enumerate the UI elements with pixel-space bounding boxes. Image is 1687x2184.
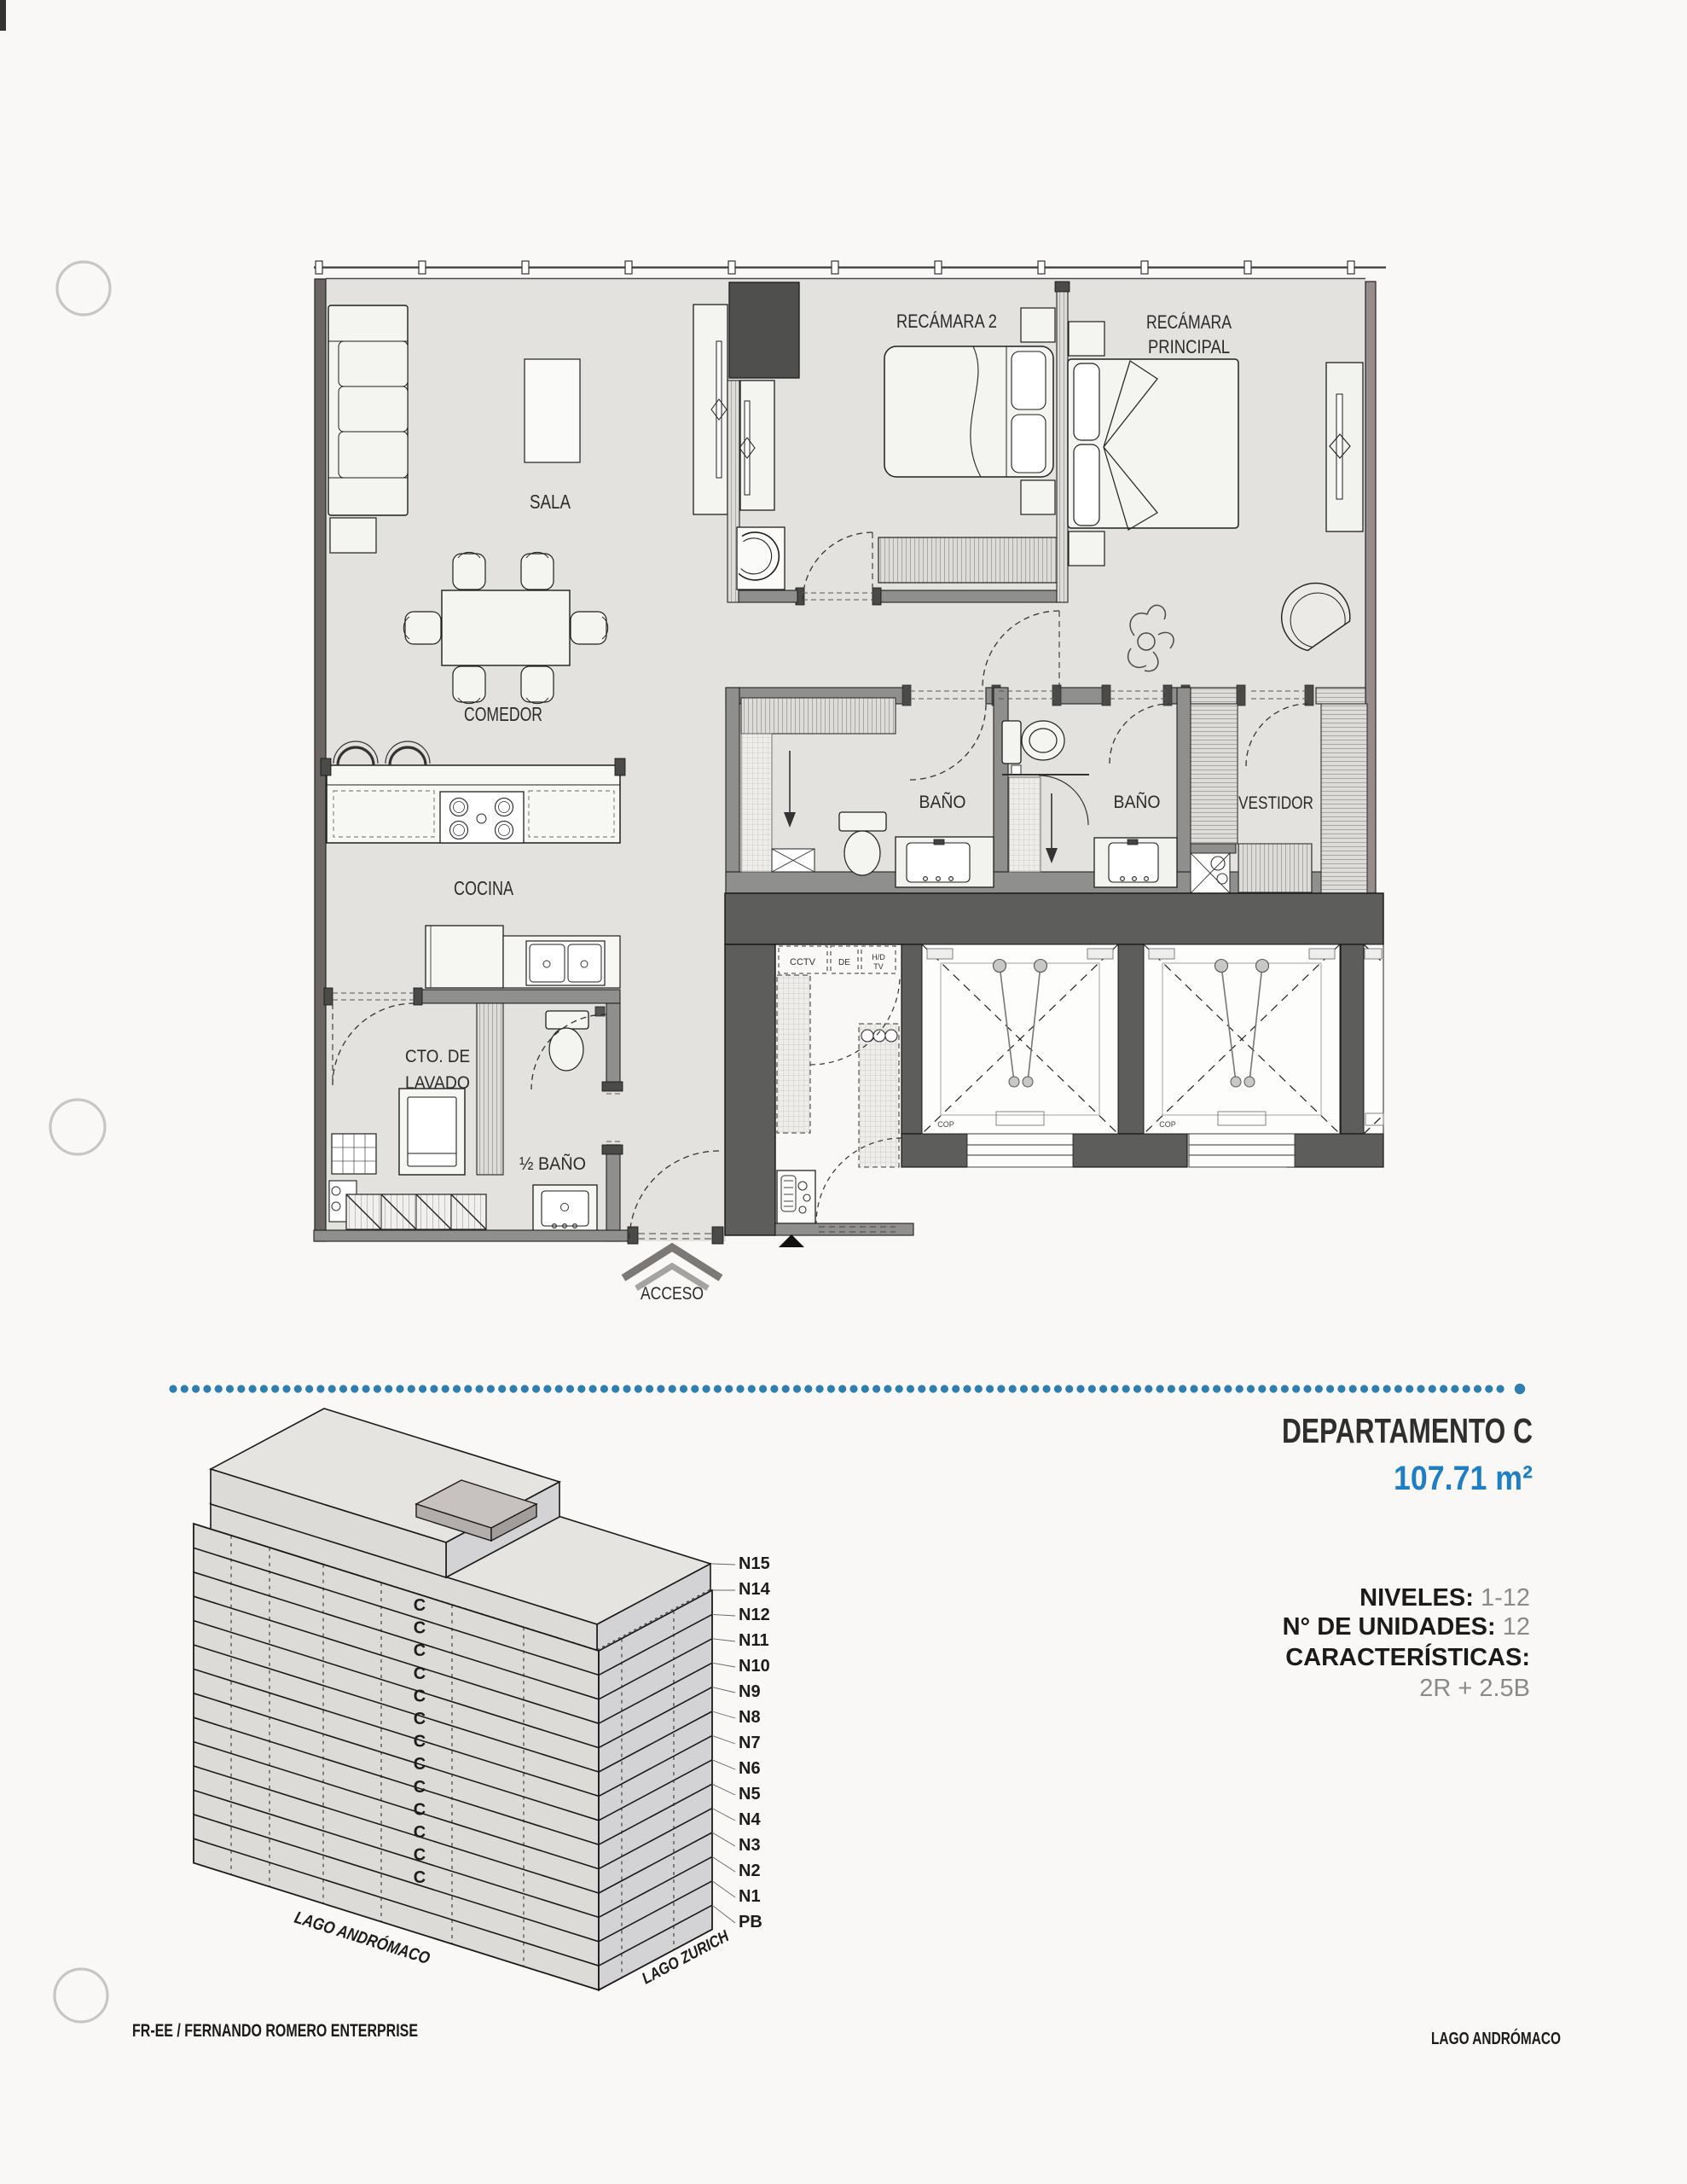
svg-text:LAVADO: LAVADO — [405, 1073, 470, 1093]
svg-text:N2: N2 — [739, 1862, 761, 1880]
svg-text:CARACTERÍSTICAS:: CARACTERÍSTICAS: — [1285, 1642, 1530, 1671]
svg-text:N° DE UNIDADES: 12: N° DE UNIDADES: 12 — [1283, 1613, 1530, 1641]
svg-text:C: C — [414, 1733, 426, 1751]
svg-text:½ BAÑO: ½ BAÑO — [519, 1153, 586, 1174]
svg-text:C: C — [414, 1755, 426, 1774]
svg-text:C: C — [414, 1868, 426, 1887]
svg-text:BAÑO: BAÑO — [919, 792, 966, 812]
svg-text:COCINA: COCINA — [454, 877, 514, 899]
svg-text:N4: N4 — [739, 1810, 761, 1829]
svg-text:C: C — [414, 1664, 426, 1683]
svg-text:2R + 2.5B: 2R + 2.5B — [1419, 1675, 1530, 1702]
svg-text:N5: N5 — [739, 1785, 761, 1804]
svg-text:C: C — [414, 1846, 426, 1865]
svg-text:COP: COP — [937, 1120, 954, 1129]
svg-text:CCTV: CCTV — [790, 957, 816, 967]
svg-text:N14: N14 — [739, 1580, 771, 1599]
svg-text:FR-EE / FERNANDO ROMERO ENTERP: FR-EE / FERNANDO ROMERO ENTERPRISE — [132, 2021, 418, 2041]
svg-text:C: C — [414, 1710, 426, 1728]
svg-text:N7: N7 — [739, 1734, 761, 1752]
svg-text:DE: DE — [838, 958, 850, 967]
svg-text:DEPARTAMENTO C: DEPARTAMENTO C — [1282, 1411, 1533, 1450]
svg-text:COMEDOR: COMEDOR — [464, 703, 542, 725]
svg-text:SALA: SALA — [530, 491, 571, 513]
svg-text:NIVELES: 1-12: NIVELES: 1-12 — [1359, 1584, 1530, 1612]
svg-text:PB: PB — [739, 1913, 762, 1931]
svg-text:N9: N9 — [739, 1682, 761, 1701]
svg-text:C: C — [414, 1619, 426, 1638]
svg-text:N8: N8 — [739, 1708, 761, 1727]
svg-text:C: C — [414, 1596, 426, 1615]
svg-text:PRINCIPAL: PRINCIPAL — [1148, 336, 1230, 357]
svg-text:H/D: H/D — [872, 953, 885, 961]
svg-text:RECÁMARA: RECÁMARA — [1146, 311, 1232, 333]
svg-text:LAGO ANDRÓMACO: LAGO ANDRÓMACO — [1431, 2028, 1561, 2048]
svg-text:C: C — [414, 1800, 426, 1819]
svg-text:BAÑO: BAÑO — [1114, 792, 1161, 812]
svg-text:TV: TV — [873, 962, 884, 971]
svg-text:C: C — [414, 1687, 426, 1705]
svg-text:N12: N12 — [739, 1606, 770, 1624]
svg-text:RECÁMARA 2: RECÁMARA 2 — [896, 311, 997, 332]
svg-text:VESTIDOR: VESTIDOR — [1238, 793, 1313, 813]
svg-text:N10: N10 — [739, 1657, 770, 1676]
svg-text:CTO. DE: CTO. DE — [405, 1047, 470, 1066]
svg-text:N6: N6 — [739, 1759, 761, 1778]
svg-text:ACCESO: ACCESO — [641, 1284, 704, 1304]
svg-text:N3: N3 — [739, 1836, 761, 1855]
svg-text:N15: N15 — [739, 1554, 770, 1573]
svg-text:N11: N11 — [739, 1631, 769, 1650]
svg-text:C: C — [414, 1641, 426, 1660]
svg-text:107.71 m²: 107.71 m² — [1394, 1460, 1533, 1497]
svg-text:C: C — [414, 1823, 426, 1842]
svg-text:C: C — [414, 1778, 426, 1797]
svg-text:N1: N1 — [739, 1887, 761, 1906]
svg-text:COP: COP — [1159, 1120, 1176, 1129]
